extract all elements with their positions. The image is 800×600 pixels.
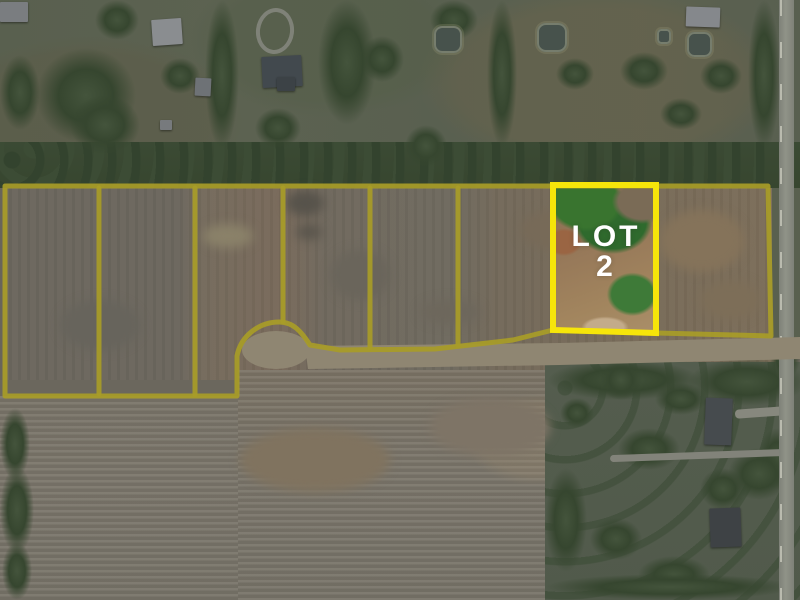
lot-2-label: LOT 2 bbox=[553, 221, 656, 282]
aerial-lot-map: LOT 2 bbox=[0, 0, 800, 600]
culdesac-pavement bbox=[242, 331, 310, 369]
lot-label-number: 2 bbox=[596, 252, 613, 282]
lot-label-word: LOT bbox=[569, 221, 641, 252]
parcel-lines-overlay bbox=[0, 0, 800, 600]
street-pavement bbox=[305, 337, 800, 369]
